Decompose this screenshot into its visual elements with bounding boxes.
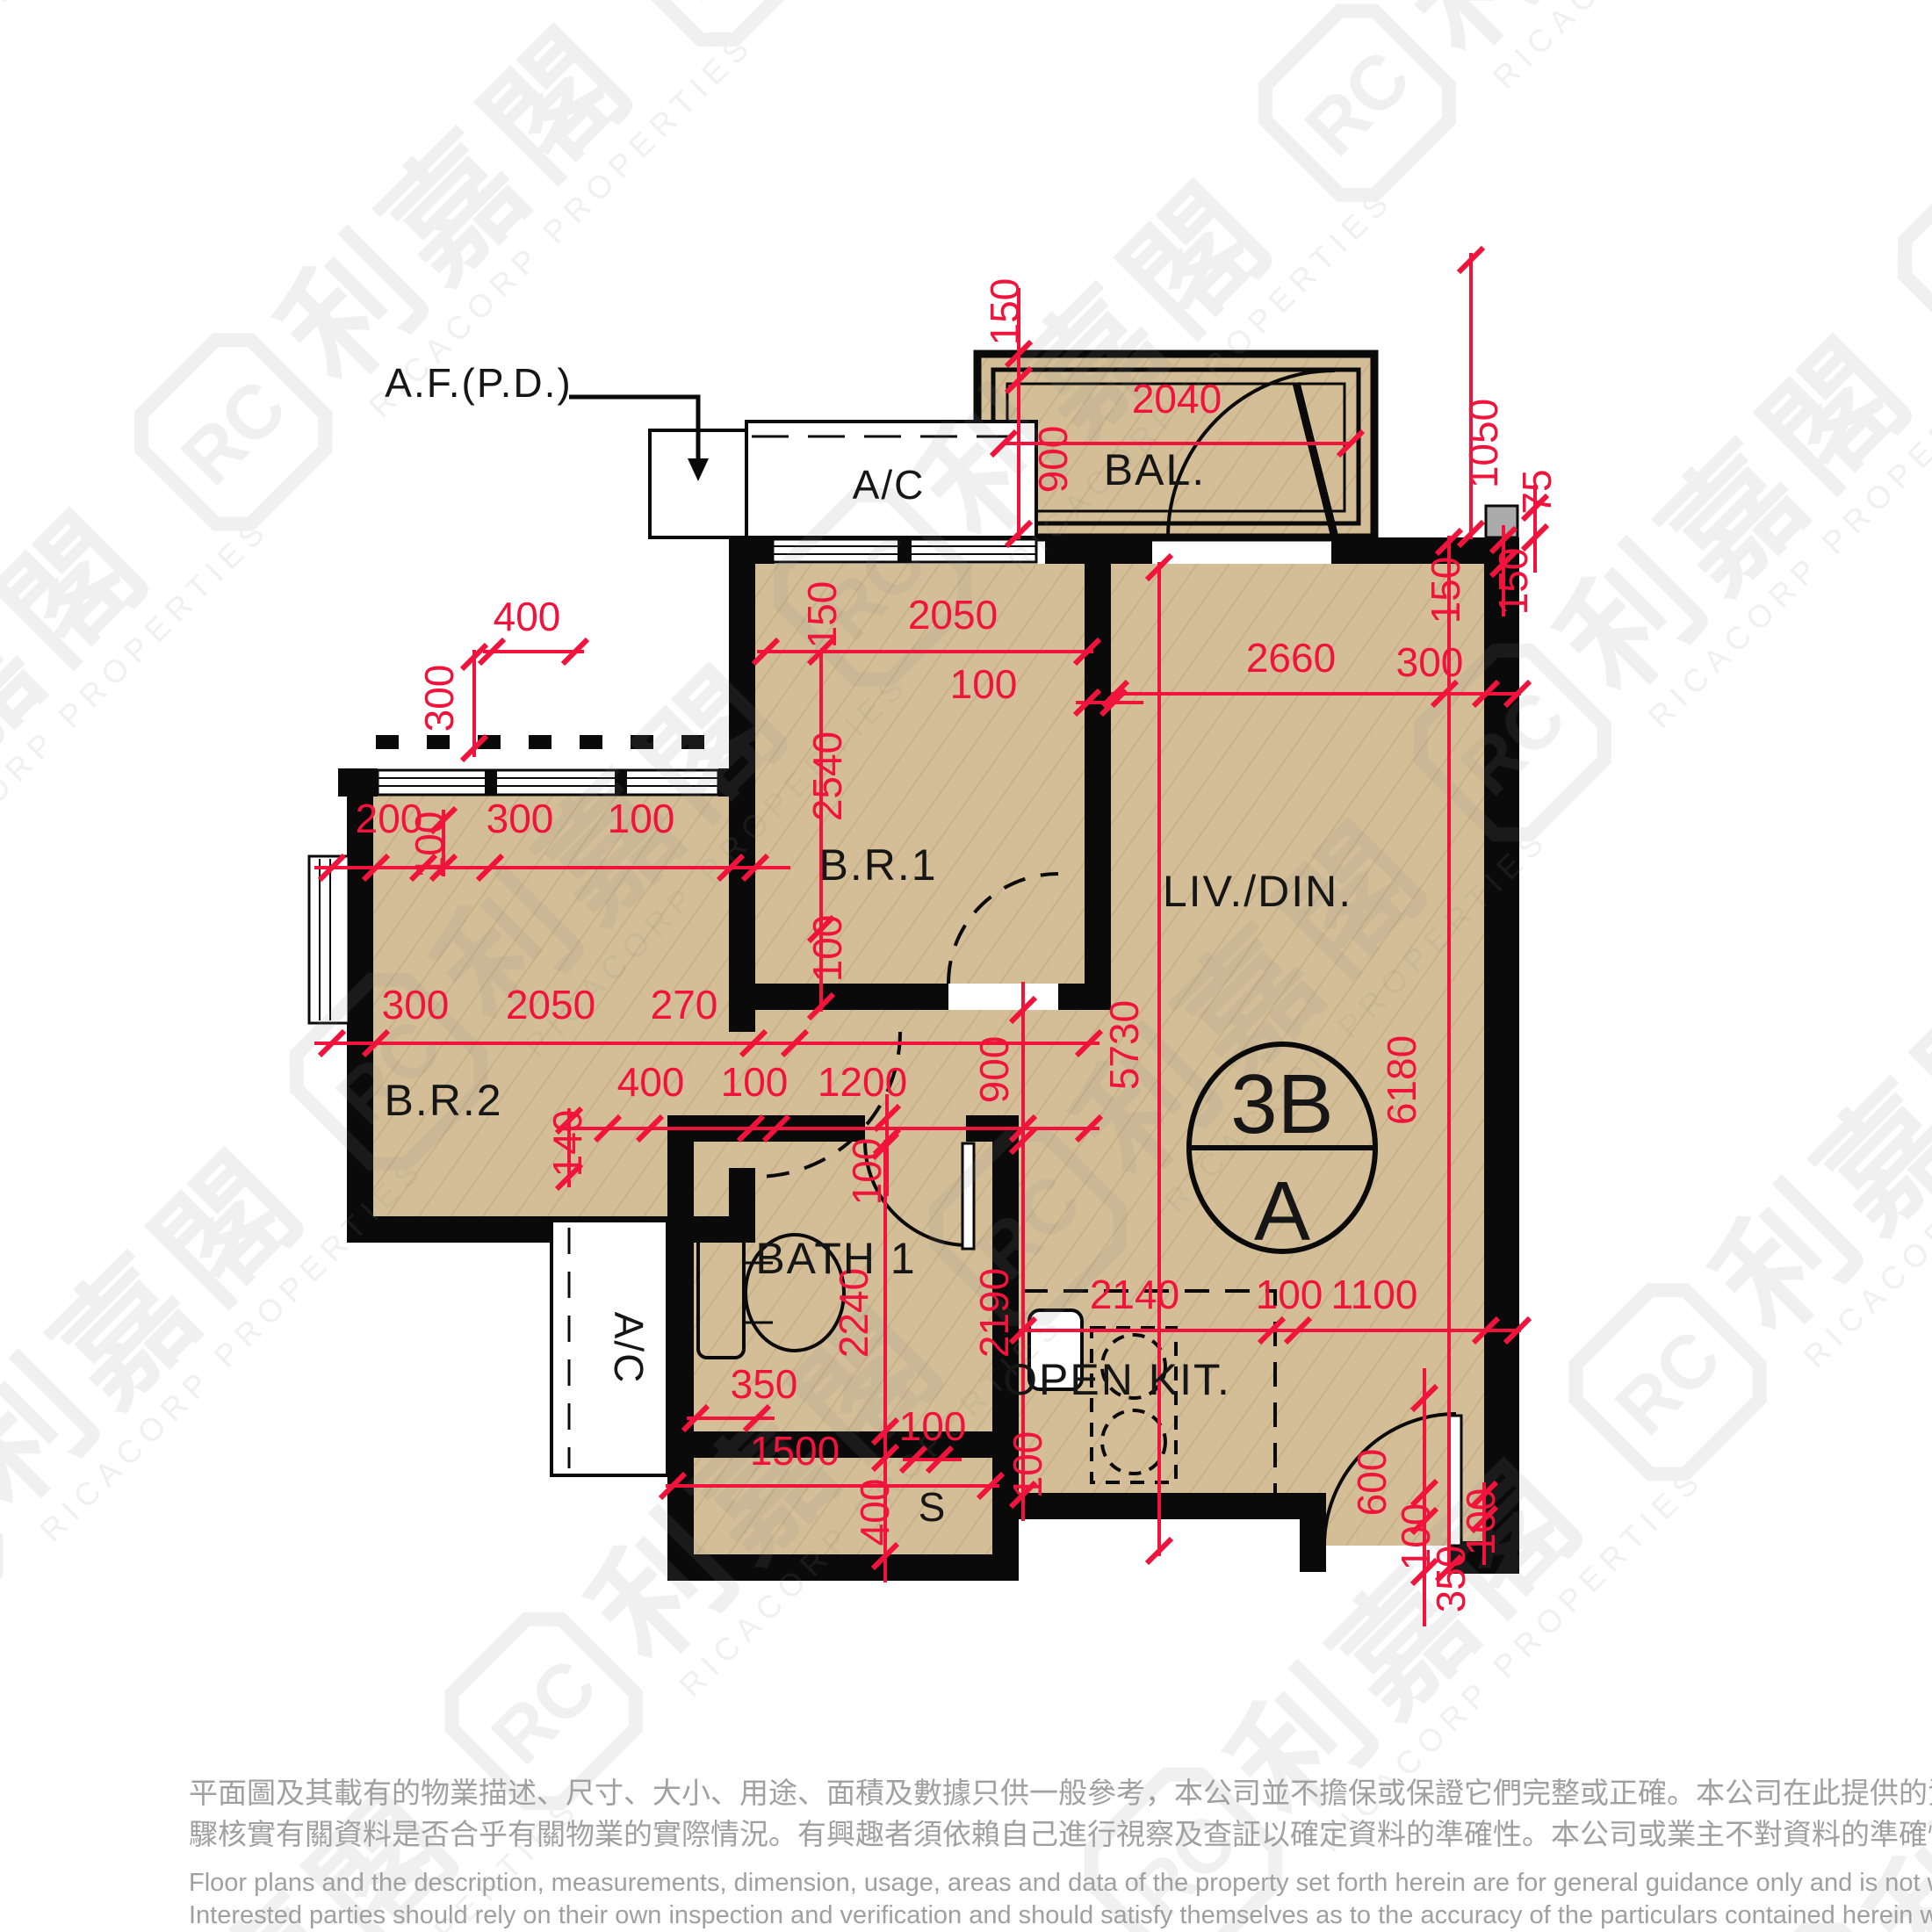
dim-label: 270 [651, 982, 718, 1027]
watermark-latin-text: RICACORP PROPERTIES [0, 0, 121, 270]
wall-br1-liv [1085, 564, 1111, 984]
dim-label: 600 [1349, 1449, 1395, 1517]
dim-label: 100 [721, 1059, 789, 1105]
dim-label: 1100 [1331, 1272, 1418, 1317]
dim-label: 2140 [1090, 1272, 1179, 1317]
watermark-cell: RC利嘉閣RICACORP PROPERTIES [0, 0, 121, 405]
disclaimer-zh-line1: 平面圖及其載有的物業描述、尺寸、大小、用途、面積及數據只供一般參考，本公司並不擔… [189, 1772, 1770, 1813]
disclaimer-en-line2: Interested parties should rely on their … [189, 1900, 1770, 1932]
watermark-cjk-text: 利嘉閣 [0, 0, 25, 253]
room-label: LIV./DIN. [1163, 867, 1352, 916]
unit-badge-floor: 3B [1230, 1057, 1333, 1151]
dim-label: 1200 [818, 1059, 907, 1105]
wall-entry-step [1300, 1493, 1326, 1572]
dim-label: 75 [1514, 469, 1560, 514]
watermark-monogram: RC [1289, 35, 1426, 172]
room-label: A.F.(P.D.) [385, 360, 572, 406]
dim-label: 100 [407, 811, 452, 879]
dim-label: 150 [1490, 548, 1536, 616]
dim-label: 140 [544, 1110, 590, 1178]
disclaimer-block: 平面圖及其載有的物業描述、尺寸、大小、用途、面積及數據只供一般參考，本公司並不擔… [189, 1772, 1770, 1932]
disclaimer-zh-line2: 驟核實有關資料是否合乎有關物業的實際情況。有興趣者須依賴自己進行視察及查証以確定… [189, 1813, 1770, 1855]
dim-label: 400 [617, 1059, 685, 1105]
wall [338, 768, 378, 797]
dim-label: 150 [1423, 557, 1468, 624]
dim-label: 100 [899, 1403, 967, 1449]
disclaimer-en-line1: Floor plans and the description, measure… [189, 1867, 1770, 1900]
dim-label: 150 [982, 278, 1027, 346]
watermark-cell: RC利嘉閣RICACORP PROPERTIES [1248, 0, 1885, 231]
dim-label: 100 [844, 1138, 890, 1206]
dim-label: 300 [487, 796, 554, 841]
room-label: OPEN KIT. [1003, 1355, 1231, 1404]
floor-plan-drawing: RC利嘉閣RICACORP PROPERTIESRC利嘉閣RICACORP PR… [0, 0, 1932, 1932]
dim-label: 2040 [1132, 376, 1222, 422]
dim-label: 5730 [1101, 1000, 1147, 1090]
unit-badge-flat: A [1254, 1164, 1310, 1258]
room-label: B.R.2 [384, 1076, 502, 1125]
disclaimer-gap [189, 1855, 1770, 1867]
dim-label: 100 [950, 661, 1018, 707]
wall-kitchen-bottom [1019, 1493, 1326, 1519]
dim-label: 900 [1030, 426, 1076, 494]
dim-label: 350 [731, 1361, 798, 1407]
watermark-monogram: RC [1600, 1315, 1737, 1452]
room-label: A/C [853, 462, 926, 508]
room-label: A/C [606, 1312, 652, 1385]
watermark-cell: RC利嘉閣RICACORP PROPERTIES [0, 407, 277, 1044]
room-label: BATH 1 [755, 1234, 916, 1283]
watermark-cjk-text: 利嘉閣 [0, 1122, 335, 1532]
dim-label: 900 [971, 1036, 1017, 1104]
watermark-monogram: RC [165, 364, 302, 501]
dim-label: 300 [1396, 639, 1464, 685]
watermark-octagon-icon [1887, 148, 1932, 367]
watermark-cell: RC利嘉閣RICACORP PROPERTIES [1887, 0, 1932, 386]
dim-label: 1500 [750, 1428, 840, 1474]
dim-label: 100 [1458, 1489, 1503, 1556]
wall [1331, 537, 1374, 564]
watermark-latin-text: RICACORP PROPERTIES [1486, 0, 1885, 96]
dim-label: 300 [416, 665, 462, 732]
watermark-monogram: RC [476, 1643, 613, 1780]
dim-label: 100 [608, 796, 675, 841]
room-label: BAL. [1104, 445, 1206, 494]
dim-label: 6180 [1379, 1035, 1424, 1125]
dim-label: 100 [1256, 1272, 1323, 1317]
wall [729, 537, 775, 564]
dim-label: 300 [382, 982, 450, 1027]
dim-label: 2540 [804, 732, 850, 821]
wall-br2-left [347, 795, 373, 1243]
dim-label: 2050 [506, 982, 595, 1027]
dim-label: 400 [494, 594, 561, 639]
dim-label: 100 [804, 915, 850, 983]
room-label: B.R.1 [818, 840, 937, 890]
dim-label: 2190 [971, 1268, 1017, 1358]
room-label: S [919, 1484, 948, 1530]
dim-label: 2050 [908, 592, 998, 638]
dim-label: 100 [1005, 1431, 1050, 1499]
dim-label: 150 [799, 581, 845, 649]
watermark-cell: RC利嘉閣RICACORP PROPERTIES [1559, 873, 1932, 1510]
wall-br1-bottom [755, 984, 948, 1010]
dim-label: 400 [852, 1479, 898, 1546]
window-mullion [485, 770, 497, 795]
dim-label: 1050 [1460, 399, 1506, 488]
dim-label: 2660 [1246, 635, 1336, 681]
page: RC利嘉閣RICACORP PROPERTIESRC利嘉閣RICACORP PR… [0, 0, 1932, 1932]
br2-bay-window [309, 856, 349, 1023]
